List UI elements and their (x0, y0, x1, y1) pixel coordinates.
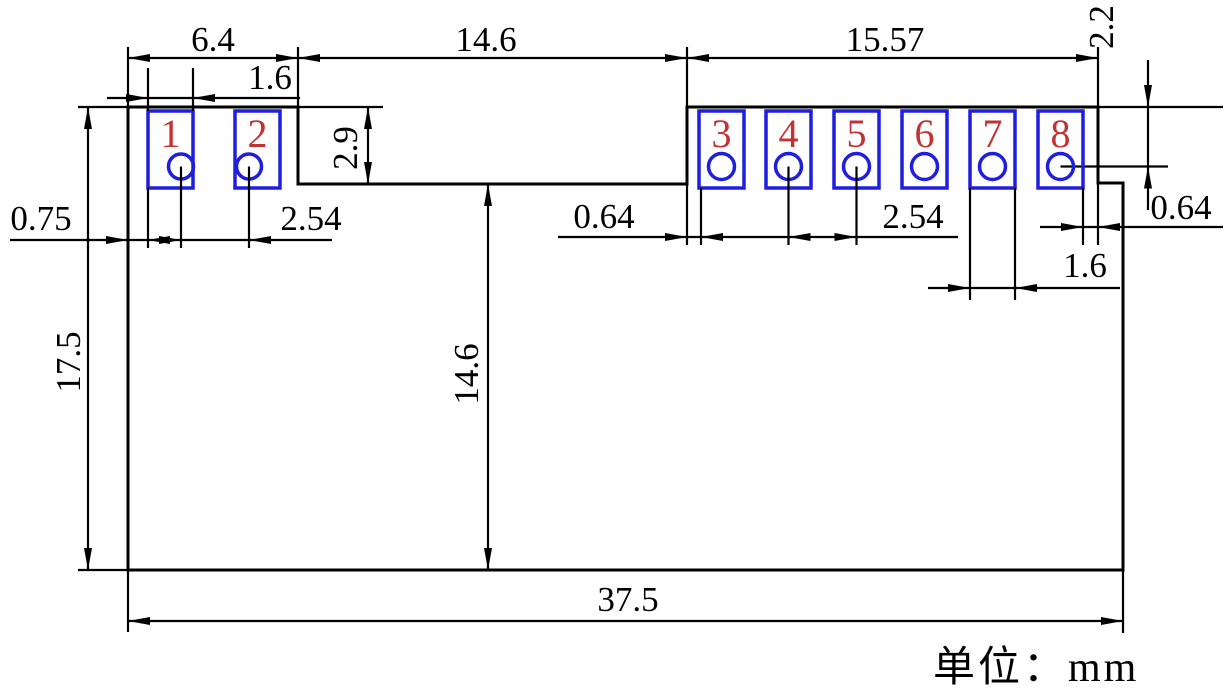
pad-1-number: 1 (161, 111, 181, 156)
dim-value: 1.6 (1063, 246, 1107, 285)
pad-4-number: 4 (779, 111, 799, 156)
dim-value: 0.64 (1150, 188, 1211, 227)
pad-7-number: 7 (983, 111, 1003, 156)
pad-3-number: 3 (712, 111, 732, 156)
pad-5-number: 5 (847, 111, 867, 156)
dim-value: 37.5 (597, 580, 658, 619)
dim-value: 2.9 (326, 126, 365, 170)
dim-value: 14.6 (447, 343, 486, 404)
dim-value: 17.5 (49, 331, 88, 392)
dim-value: 2.2 (1082, 5, 1121, 49)
dim-value: 2.54 (882, 197, 943, 236)
pad-6-number: 6 (915, 111, 935, 156)
dim-value: 6.4 (191, 20, 235, 59)
pad-8-number: 8 (1051, 111, 1071, 156)
dim-value: 0.64 (573, 197, 634, 236)
dim-value: 14.6 (455, 20, 516, 59)
dim-value: 2.54 (280, 199, 341, 238)
drawing-canvas: 1 2 3 4 5 6 7 (0, 0, 1225, 692)
unit-note: 单位：mm (933, 644, 1139, 691)
pad-2-number: 2 (248, 111, 268, 156)
dim-value: 15.57 (846, 20, 925, 59)
dim-value: 0.75 (10, 199, 71, 238)
dim-value: 1.6 (248, 58, 292, 97)
technical-drawing: 1 2 3 4 5 6 7 (0, 0, 1225, 692)
